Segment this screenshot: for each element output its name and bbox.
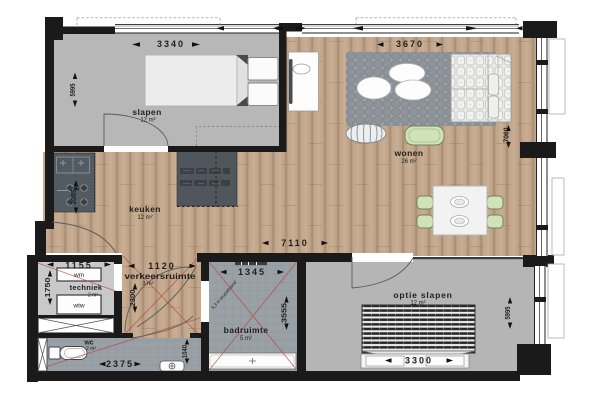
svg-text:7110: 7110 xyxy=(281,238,309,248)
svg-text:12 m²: 12 m² xyxy=(137,215,152,221)
svg-text:2300: 2300 xyxy=(128,290,137,307)
svg-text:badruimte: badruimte xyxy=(224,325,269,335)
svg-text:wm: wm xyxy=(73,272,84,279)
svg-text:26 m²: 26 m² xyxy=(401,159,416,165)
svg-text:2 m²: 2 m² xyxy=(86,346,96,352)
svg-text:3300: 3300 xyxy=(405,356,433,366)
svg-text:1750: 1750 xyxy=(43,278,52,298)
svg-text:1345: 1345 xyxy=(238,267,266,277)
svg-text:12 m²: 12 m² xyxy=(140,118,155,124)
svg-text:5995: 5995 xyxy=(503,307,512,320)
svg-text:5 m²: 5 m² xyxy=(240,336,252,342)
svg-text:verkeersruimte: verkeersruimte xyxy=(125,272,197,281)
svg-text:1040: 1040 xyxy=(180,345,189,358)
svg-text:1155: 1155 xyxy=(65,261,93,271)
svg-text:optie slapen: optie slapen xyxy=(393,290,452,300)
svg-text:keuken: keuken xyxy=(129,204,161,214)
svg-text:wtw: wtw xyxy=(72,303,85,310)
svg-text:2375: 2375 xyxy=(106,359,134,369)
svg-text:wonen: wonen xyxy=(394,148,424,158)
svg-text:2 m²: 2 m² xyxy=(88,293,98,299)
svg-text:3085: 3085 xyxy=(69,189,78,205)
svg-text:3340: 3340 xyxy=(157,39,185,49)
svg-text:slapen: slapen xyxy=(132,107,161,117)
svg-text:techniek: techniek xyxy=(70,283,103,292)
svg-text:12 m²: 12 m² xyxy=(410,301,425,307)
svg-text:1120: 1120 xyxy=(148,261,176,271)
svg-text:3670: 3670 xyxy=(396,39,424,49)
svg-text:5995: 5995 xyxy=(68,84,77,97)
svg-text:3555: 3555 xyxy=(280,303,289,323)
svg-text:3 m²: 3 m² xyxy=(143,281,154,287)
